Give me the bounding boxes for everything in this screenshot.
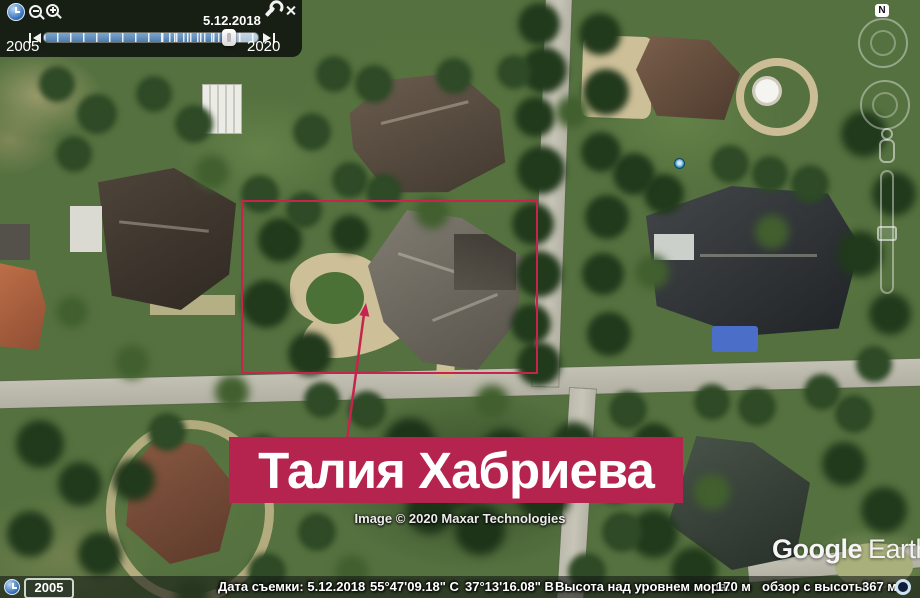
eye-altitude-value: 367 м [862,579,897,594]
logo-google: Google [772,534,862,564]
annotation-label[interactable]: Талия Хабриева [229,437,683,503]
imagery-attribution: Image © 2020 Maxar Technologies [0,511,920,526]
longitude-readout: 37°13'16.08" В [465,579,554,594]
google-earth-logo: GoogleEarth [772,534,920,565]
oldest-imagery-year-badge[interactable]: 2005 [24,578,74,598]
logo-earth: Earth [868,534,920,564]
move-joystick-inner[interactable] [872,92,898,118]
timeline-end-year: 2020 [247,38,280,55]
zoom-out-icon[interactable] [29,5,42,18]
timeline-current-date: 5.12.2018 [203,13,261,28]
altitude-label: Высота над уровнем моря: [555,579,731,594]
tennis-court [202,84,242,134]
zoom-slider-thumb[interactable] [877,226,897,241]
status-bar: 2005 Дата съемки: 5.12.2018 55°47'09.18"… [0,576,920,598]
history-clock-icon[interactable] [7,3,25,21]
time-slider-panel: 5.12.2018 2005 2020 [0,0,302,57]
eye-altitude-label: обзор с высоты [762,579,866,594]
altitude-value: 170 м [716,579,751,594]
blue-awning [712,326,758,352]
history-clock-icon-small[interactable] [4,579,20,595]
settings-wrench-icon[interactable] [265,6,275,17]
terrace [654,234,694,260]
house-roof [0,224,30,260]
photo-marker-icon[interactable] [674,158,685,169]
car [600,213,618,223]
patio [70,206,102,252]
capture-date: Дата съемки: 5.12.2018 [218,579,365,594]
pegman-icon[interactable] [878,128,892,162]
google-earth-window: Талия Хабриева Image © 2020 Maxar Techno… [0,0,920,598]
eye-altitude-icon [895,579,911,595]
timeline-start-year: 2005 [6,38,39,55]
fountain [752,76,782,106]
zoom-in-icon[interactable] [46,4,59,17]
look-joystick-inner[interactable] [870,30,896,56]
close-icon[interactable] [285,5,296,16]
latitude-readout: 55°47'09.18" С [370,579,459,594]
compass-north-button[interactable]: N [875,4,889,17]
timeline-thumb[interactable] [222,29,236,46]
annotation-rectangle [241,200,538,374]
